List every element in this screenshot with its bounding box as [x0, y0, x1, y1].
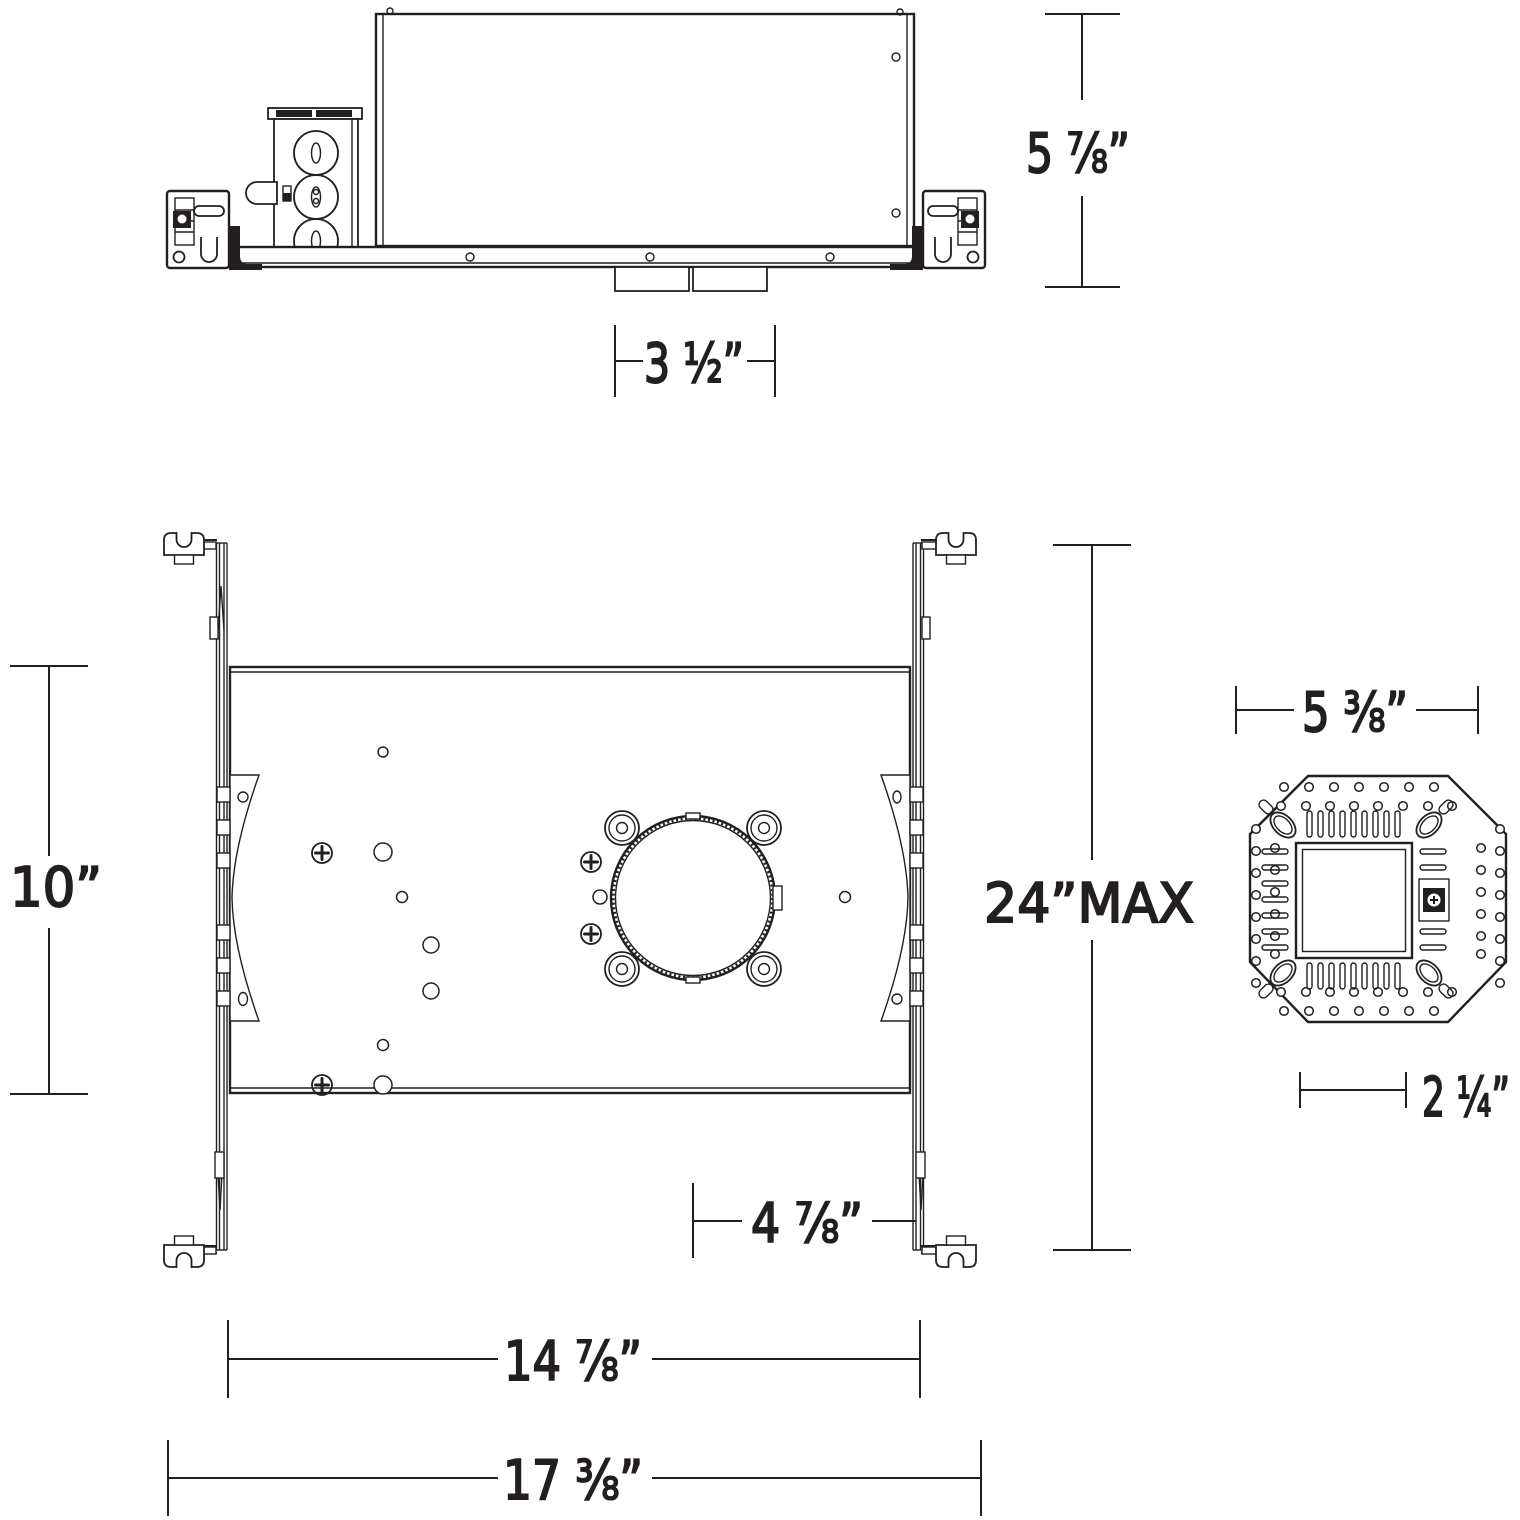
dim-module-width: 5 ⅜”	[1236, 681, 1478, 744]
dim-aperture-offset: 4 ⅞”	[693, 1183, 916, 1258]
dim-pan-depth: 10”	[10, 666, 102, 1094]
nail-plate-bottom-right	[921, 1236, 976, 1267]
mounting-hole	[1252, 825, 1261, 834]
mounting-hole	[1252, 891, 1261, 900]
hanger-bar-left	[210, 543, 227, 1250]
mounting-hole	[1430, 783, 1439, 792]
dimension-label: 3 ½”	[644, 332, 744, 395]
mounting-hole	[1271, 932, 1280, 941]
mounting-pan	[217, 667, 923, 1095]
mounting-hole	[1405, 783, 1414, 792]
mounting-hole	[1305, 1007, 1314, 1016]
mounting-hole	[1496, 913, 1505, 922]
dim-housing-height: 5 ⅞”	[1026, 14, 1130, 287]
mounting-hole	[1326, 802, 1335, 811]
mounting-hole	[1477, 950, 1486, 959]
dimension-label: 24”MAX	[984, 872, 1194, 935]
mounting-hole	[1448, 802, 1457, 811]
dimension-label: 2 ¼”	[1422, 1066, 1510, 1129]
dim-pan-width: 14 ⅞”	[228, 1320, 920, 1398]
nail-plate-top-left	[164, 533, 217, 564]
technical-drawing: 5 ⅞” 3 ½”	[0, 0, 1520, 1520]
mounting-hole	[1271, 910, 1280, 919]
mounting-hole	[1424, 988, 1433, 997]
mounting-hole	[1496, 869, 1505, 878]
dimension-label: 5 ⅜”	[1302, 681, 1408, 744]
mounting-hole	[1355, 783, 1364, 792]
mounting-hole	[1496, 891, 1505, 900]
mounting-hole	[1350, 802, 1359, 811]
dimension-label: 5 ⅞”	[1026, 122, 1130, 185]
ring-tab	[773, 886, 782, 910]
mounting-hole	[1252, 935, 1261, 944]
dimension-label: 10”	[10, 856, 102, 919]
mounting-hole	[1477, 888, 1486, 897]
dim-module-aperture: 2 ¼”	[1300, 1066, 1510, 1129]
mounting-hole	[1374, 802, 1383, 811]
mounting-hole	[1496, 935, 1505, 944]
dimension-label: 14 ⅞”	[504, 1330, 642, 1393]
mounting-hole	[1496, 847, 1505, 856]
frame-plan-view	[164, 533, 976, 1267]
mounting-hole	[1380, 783, 1389, 792]
mounting-hole	[1305, 783, 1314, 792]
mounting-hole	[1271, 844, 1280, 853]
dim-hanger-bar-span: 24”MAX	[984, 545, 1194, 1250]
mounting-hole	[1430, 1007, 1439, 1016]
dimension-label: 4 ⅞”	[751, 1192, 863, 1255]
side-elevation-view	[167, 8, 985, 291]
cable-connector	[246, 182, 277, 204]
junction-box-body	[274, 119, 358, 247]
dim-overall-width: 17 ⅜”	[168, 1440, 981, 1516]
trim-module-view	[1250, 776, 1506, 1022]
module-aperture	[1296, 843, 1412, 958]
frame-rail	[233, 247, 919, 291]
mounting-hole	[1280, 1007, 1289, 1016]
mounting-hole	[1252, 847, 1261, 856]
mounting-hole	[1252, 869, 1261, 878]
dim-collar-width: 3 ½”	[615, 325, 775, 397]
housing-box	[376, 8, 914, 246]
mounting-hole	[1271, 950, 1280, 959]
collar-tab	[693, 267, 767, 291]
hanger-bar-right	[913, 543, 930, 1250]
mounting-hole	[1280, 783, 1289, 792]
mounting-hole	[1330, 1007, 1339, 1016]
mounting-hole	[1477, 932, 1486, 941]
technical-drawing-page: 5 ⅞” 3 ½”	[0, 0, 1520, 1520]
mounting-hole	[1355, 1007, 1364, 1016]
mounting-hole	[1399, 802, 1408, 811]
nail-plate-bottom-left	[164, 1236, 217, 1267]
nail-plate-top-right	[921, 533, 976, 564]
mounting-hole	[1405, 1007, 1414, 1016]
dimension-label: 17 ⅜”	[503, 1449, 643, 1512]
mounting-hole	[1277, 988, 1286, 997]
mounting-hole	[1380, 1007, 1389, 1016]
screw-clamp	[1419, 879, 1449, 921]
junction-box	[246, 108, 362, 263]
mounting-hole	[1496, 957, 1505, 966]
mounting-hole	[1330, 783, 1339, 792]
mounting-hole	[1496, 825, 1505, 834]
mounting-hole	[1448, 988, 1457, 997]
mounting-hole	[1496, 979, 1505, 988]
mounting-hole	[1252, 957, 1261, 966]
mounting-hole	[1252, 913, 1261, 922]
mounting-hole	[1477, 844, 1486, 853]
mounting-hole	[1271, 888, 1280, 897]
mounting-hole	[1424, 802, 1433, 811]
mounting-hole	[1277, 802, 1286, 811]
collar-tab	[615, 267, 689, 291]
mounting-hole	[1302, 802, 1311, 811]
mounting-hole	[1252, 979, 1261, 988]
mounting-hole	[1477, 910, 1486, 919]
mounting-hole	[1477, 866, 1486, 875]
mounting-hole	[1399, 988, 1408, 997]
